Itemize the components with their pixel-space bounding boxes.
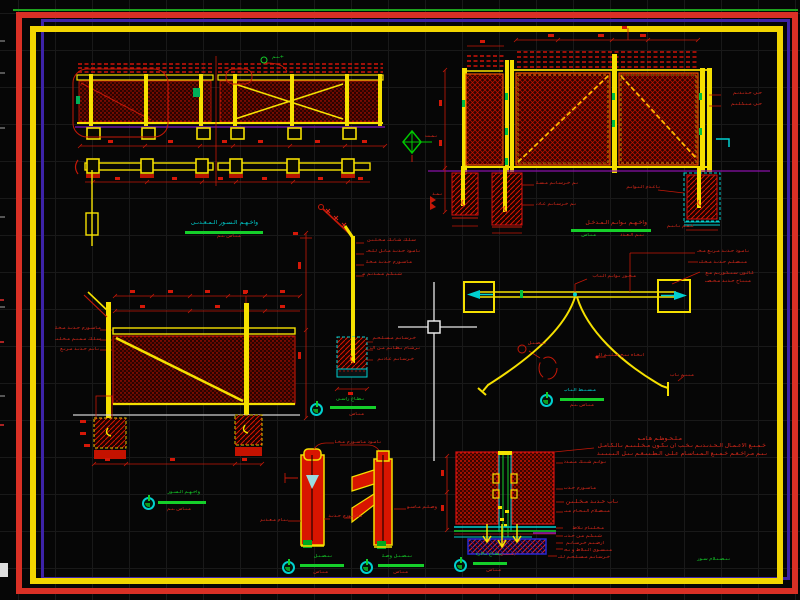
section-marker-bubble <box>454 559 467 572</box>
section-marker-bubble <box>142 497 155 510</box>
section-subtitle: مـىـاس <box>477 568 501 574</box>
section-marker-bubble <box>310 403 323 416</box>
section-subtitle: مـىـاس ـىـم <box>167 507 191 513</box>
section-marker-bubble <box>282 561 295 574</box>
section-title-underline <box>560 398 604 401</box>
section-title-underline <box>300 564 344 567</box>
section-title-underline <box>158 501 206 504</box>
section-marker-layer: واخـهـم الـسـور الـمـعـدىـىمـىـاس ـىـموا… <box>0 0 800 600</box>
section-title: واخـهـم ىـواىـم الـمـدخـل <box>573 220 647 227</box>
section-title-underline <box>378 564 424 567</box>
section-title-underline <box>571 229 651 232</box>
section-title: ىـىـصـىـل وصـلـم <box>382 554 412 560</box>
section-title: واخـهـم الـسـور الـمـعـدىـى <box>188 220 258 227</box>
section-title: ىـطـاع ىـالارض <box>476 552 502 558</box>
section-subtitle: مـىـاس <box>340 412 364 418</box>
section-title: مـسـىـط الـىـاب <box>564 388 596 394</box>
section-subtitle: ىـىـم الـعـدد <box>616 233 644 239</box>
section-marker-bubble <box>540 394 553 407</box>
section-title: واخـهـم الـسـور <box>162 490 200 496</box>
cad-viewport: +ـىـمىـمـتحـى حـدىـدىـمحـى مـىـكـلـىـمىـ… <box>0 0 800 600</box>
section-title: ىـطـاع راسـى <box>336 397 364 403</box>
section-title: ىـىـصـىـل <box>304 554 332 560</box>
section-subtitle: مـىـاس ـىـم <box>566 403 594 409</box>
section-title-underline <box>330 406 376 409</box>
section-subtitle: مـىـاس ـىـم <box>213 234 241 240</box>
section-subtitle: مـىـاس <box>308 570 328 576</box>
section-subtitle: مـىـاس <box>574 233 596 239</box>
section-subtitle: مـىـاس <box>388 570 408 576</box>
section-title-underline <box>473 562 507 565</box>
section-marker-bubble <box>360 561 373 574</box>
